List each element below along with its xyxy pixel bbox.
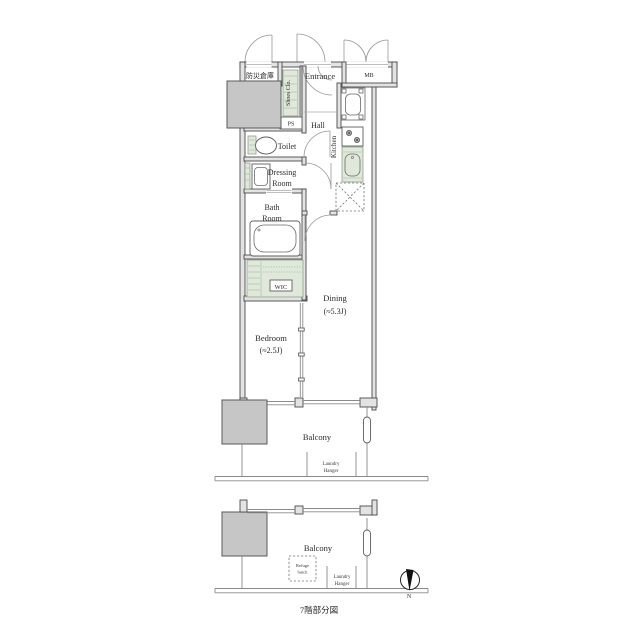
label-mb: MB [364, 73, 373, 79]
label-laundry-upper-1: Laundry [323, 462, 340, 467]
label-bedroom-size: (≈2.5J) [260, 346, 283, 355]
wic-closet [247, 260, 303, 297]
label-dining-size: (≈5.3J) [324, 307, 347, 316]
washer-pan [341, 88, 365, 120]
label-ps: PS [288, 122, 295, 128]
dressing-sink [245, 163, 270, 189]
label-dining: Dining [323, 293, 347, 303]
label-wic: WIC [275, 284, 288, 291]
toilet-fixture [248, 136, 277, 154]
dining-door-arc [305, 215, 331, 241]
label-bedroom: Bedroom [255, 333, 287, 343]
refrigerator-space [336, 183, 364, 211]
label-dressing-2: Room [272, 179, 292, 188]
floor-plan-drawing: 防災倉庫 Entrance MB Shoes Clo. PS Hall Toil… [0, 0, 628, 640]
label-laundry-lower-1: Laundry [334, 575, 351, 580]
compass [401, 569, 420, 591]
lower-section-labels: Balcony Refuge hatch Laundry Hanger 7階部分… [296, 543, 412, 615]
label-kitchen: Kitchen [330, 135, 338, 158]
toilet-door-arc [304, 131, 330, 157]
refuge-hatch-box [289, 556, 316, 581]
label-refuge-1: Refuge [296, 563, 309, 568]
label-refuge-2: hatch [298, 570, 309, 575]
exterior-door-arcs [245, 34, 388, 62]
floor-plan-canvas: 防災倉庫 Entrance MB Shoes Clo. PS Hall Toil… [0, 0, 628, 640]
label-bousai: 防災倉庫 [246, 71, 274, 80]
dressing-door-arc [305, 163, 331, 189]
label-toilet: Toilet [278, 142, 297, 151]
bedroom-sliding-door [299, 303, 305, 397]
label-entrance: Entrance [305, 71, 335, 81]
label-laundry-upper-2: Hanger [324, 469, 339, 474]
label-balcony-upper: Balcony [303, 432, 332, 442]
bathtub [250, 221, 300, 256]
label-dressing-1: Dressing [268, 168, 296, 177]
kitchen-sink [342, 147, 363, 182]
label-hall: Hall [311, 121, 326, 130]
label-balcony-lower: Balcony [304, 543, 333, 553]
label-bath-1: Bath [264, 203, 279, 212]
label-bath-2: Room [262, 214, 282, 223]
floor-caption: 7階部分図 [300, 605, 338, 615]
label-laundry-lower-2: Hanger [335, 582, 350, 587]
compass-north-label: N [407, 594, 412, 600]
kitchen-stove [342, 127, 363, 146]
label-shoes-closet: Shoes Clo. [286, 80, 292, 107]
